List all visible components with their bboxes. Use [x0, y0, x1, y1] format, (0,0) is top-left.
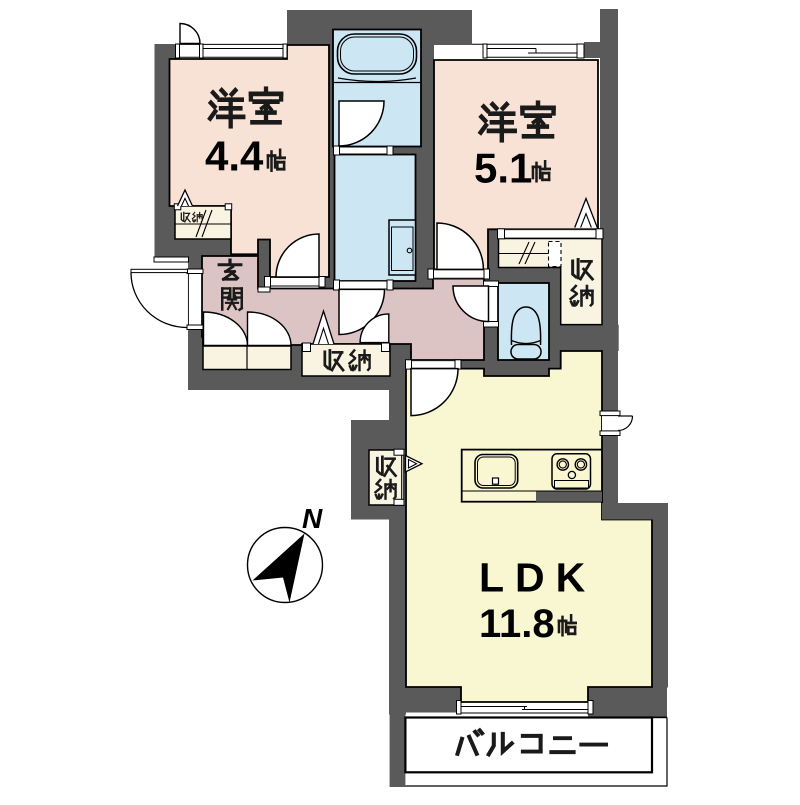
svg-text:5.1: 5.1	[474, 145, 532, 192]
svg-text:N: N	[302, 503, 323, 534]
svg-text:11.8: 11.8	[479, 602, 555, 646]
svg-text:LDK: LDK	[479, 555, 596, 601]
svg-text:4.4: 4.4	[205, 133, 264, 180]
